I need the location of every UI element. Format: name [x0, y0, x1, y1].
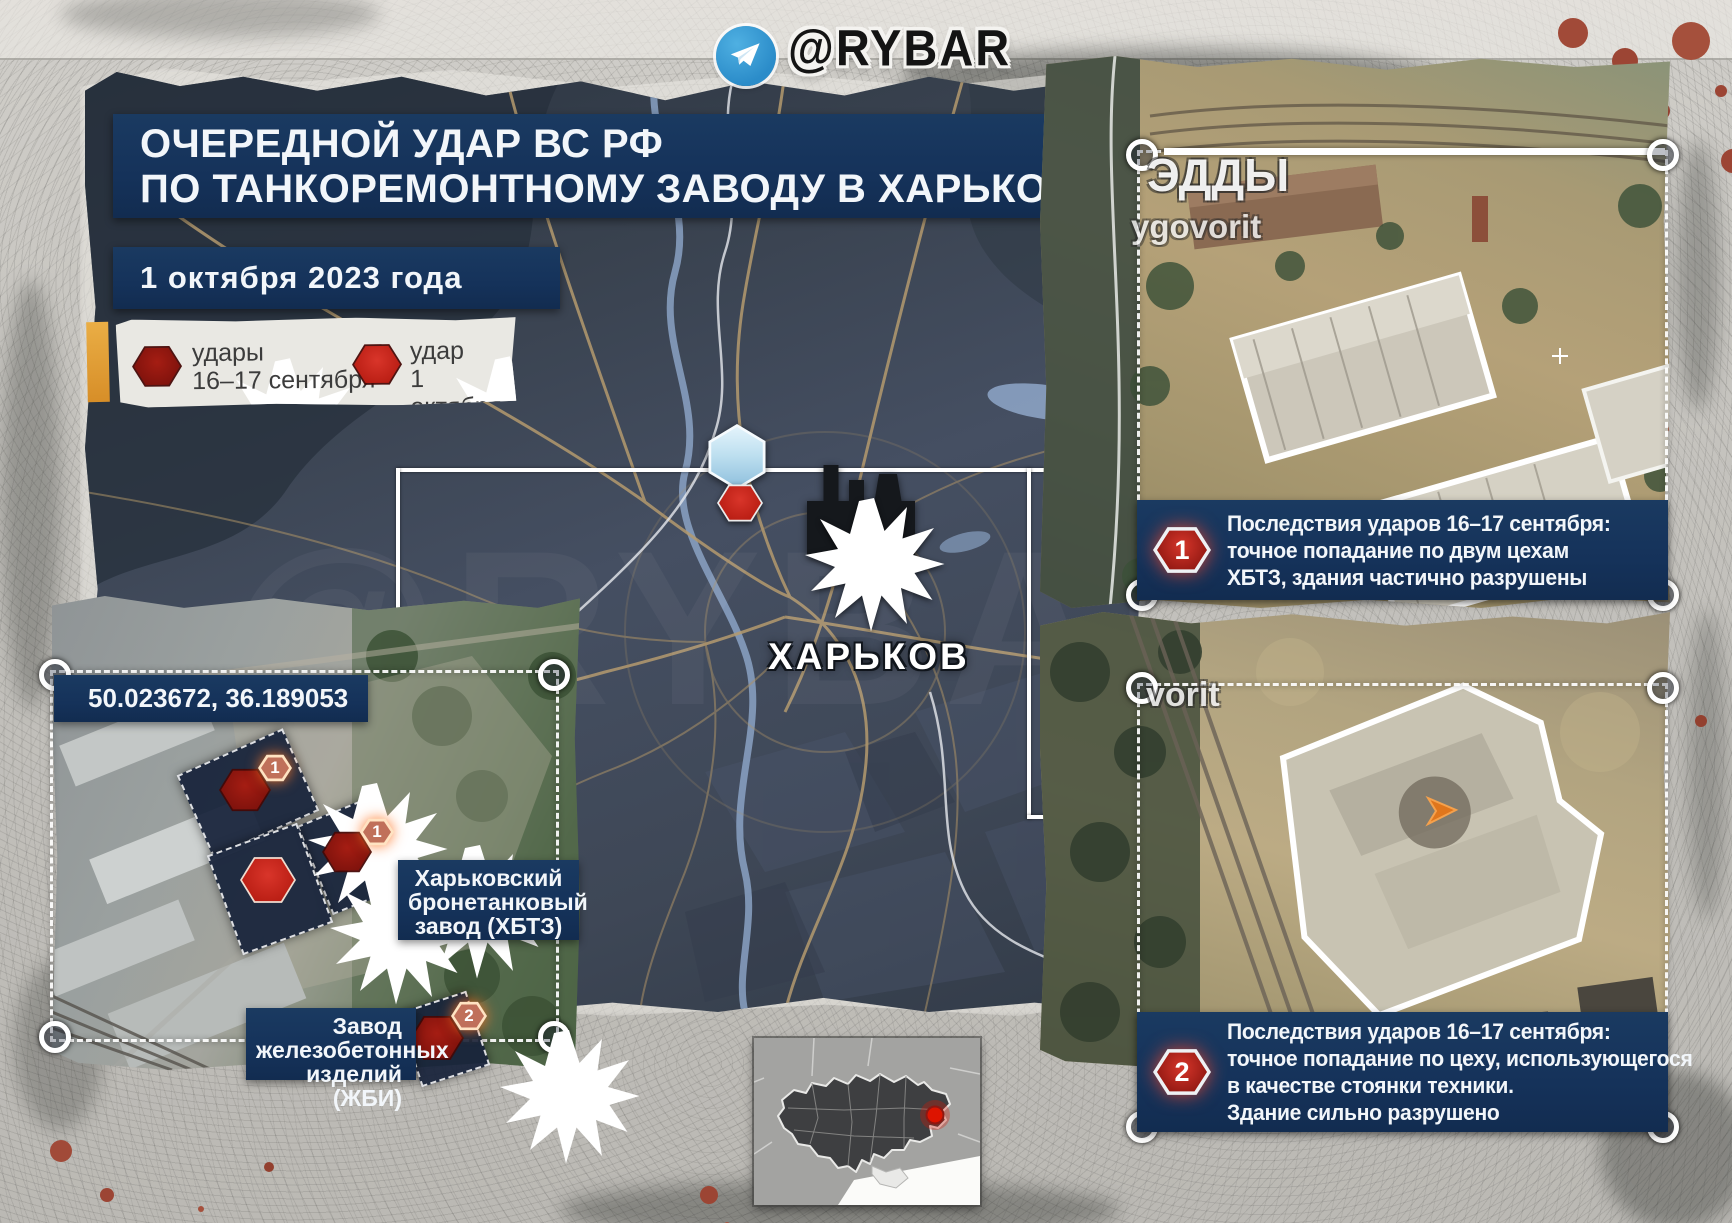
- ink-smudge: [1676, 140, 1720, 410]
- inset-photo-destroyed-workshop: [1040, 612, 1670, 1068]
- ukraine-map-art: [754, 1038, 980, 1205]
- telegram-icon: [716, 26, 776, 86]
- red-paint-splatter: [50, 1140, 72, 1162]
- title-box: ОЧЕРЕДНОЙ УДАР ВС РФ ПО ТАНКОРЕМОНТНОМУ …: [113, 114, 1070, 218]
- legend-label-september: удары 16–17 сентября: [192, 337, 376, 395]
- strike-marker-city: [717, 482, 763, 524]
- legend-accent-bar: [86, 322, 110, 402]
- channel-handle: @RYBAR: [788, 18, 1011, 77]
- explosion-icon: [419, 1021, 719, 1171]
- coordinates-label: 50.023672, 36.189053: [54, 675, 368, 722]
- legend-strike-icon-october: [352, 341, 402, 387]
- caption-text: Последствия ударов 16–17 сентября: точно…: [1227, 1018, 1693, 1126]
- strike-badge-2: 2: [451, 1000, 487, 1032]
- strike-badge-1: 1: [258, 753, 292, 783]
- paper-plane-icon: [726, 36, 766, 76]
- watermark-text: ygovorit: [1131, 208, 1261, 246]
- caption-number-hex-2: 2: [1153, 1046, 1211, 1098]
- strike-location-dot: [927, 1107, 944, 1124]
- legend-strike-icon-september: [132, 343, 182, 389]
- date-label: 1 октября 2023 года: [113, 247, 560, 309]
- explosion-icon: [724, 489, 1024, 639]
- factory-marker: [706, 424, 768, 490]
- ukraine-minimap: [754, 1038, 980, 1205]
- label-khbtz: Харьковский бронетанковый завод (ХБТЗ): [398, 860, 579, 940]
- legend: удары 16–17 сентября удар 1 октября: [116, 316, 517, 407]
- ink-smudge: [1688, 610, 1726, 920]
- caption-text: Последствия ударов 16–17 сентября: точно…: [1227, 510, 1611, 591]
- title-line1: ОЧЕРЕДНОЙ УДАР ВС РФ: [140, 122, 1070, 167]
- strike-marker-october: [240, 854, 296, 906]
- ink-smudge: [2, 280, 60, 710]
- infographic-canvas: @RYBAR ХАРЬКОВ ОЧЕРЕДНОЙ УДАР ВС РФ ПО Т…: [0, 0, 1732, 1223]
- watermark-text: ЭДДЫ: [1147, 148, 1289, 202]
- caption-strike-2: 2 Последствия ударов 16–17 сентября: точ…: [1137, 1012, 1668, 1132]
- title-line2: ПО ТАНКОРЕМОНТНОМУ ЗАВОДУ В ХАРЬКОВЕ: [140, 167, 1070, 212]
- caption-strike-1: 1 Последствия ударов 16–17 сентября: точ…: [1137, 500, 1668, 600]
- caption-number-hex-1: 1: [1153, 524, 1211, 576]
- watermark-text: vorit: [1146, 676, 1220, 715]
- strike-badge-1b: 1: [360, 817, 394, 847]
- connector-line: [1027, 468, 1031, 819]
- label-zhbi: Завод железобетонных изделий (ЖБИ): [246, 1008, 416, 1080]
- city-label: ХАРЬКОВ: [768, 636, 970, 678]
- aerial-photo-art: [1040, 612, 1670, 1068]
